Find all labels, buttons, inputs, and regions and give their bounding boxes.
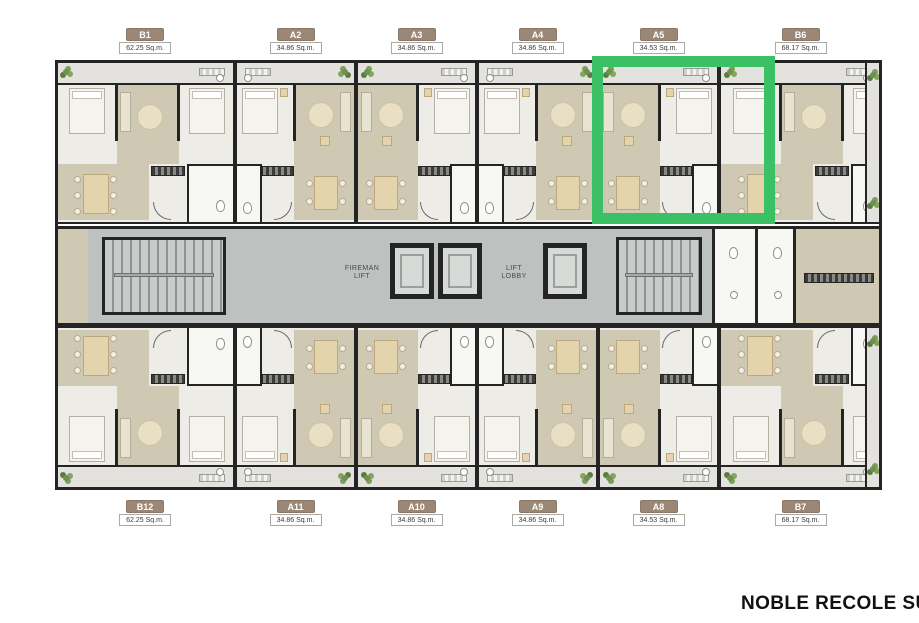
toilet-icon (243, 202, 252, 214)
unit-interior (479, 328, 596, 488)
unit-area-B7: 68.17 Sq.m. (775, 514, 827, 526)
interior-wall (115, 409, 118, 465)
bed (484, 416, 520, 462)
plant-icon (584, 69, 590, 75)
chair (110, 208, 117, 215)
entry-door-arc (420, 202, 438, 220)
plant-icon (63, 69, 69, 75)
unit-A4 (477, 60, 598, 224)
unit-area-A2: 34.86 Sq.m. (270, 42, 322, 54)
plant-icon (364, 475, 370, 481)
chair (738, 351, 745, 358)
nightstand (280, 88, 288, 97)
toilet-icon (243, 336, 252, 348)
chair (641, 345, 648, 352)
rug (550, 102, 576, 128)
bed (189, 88, 225, 134)
chair (581, 180, 588, 187)
fireman-lift-label: FIREMAN LIFT (336, 265, 388, 281)
unit-label-A3: A3 (398, 28, 436, 41)
core-west-strip (55, 226, 88, 326)
rug (801, 420, 827, 446)
unit-interior (479, 62, 596, 222)
unit-A2 (235, 60, 356, 224)
unit-label-B7: B7 (782, 500, 820, 513)
sink-icon (216, 74, 224, 82)
lift-shaft-fireman (390, 243, 434, 299)
unit-area-B12: 62.25 Sq.m. (119, 514, 171, 526)
dining-table (556, 340, 580, 374)
unit-interior (721, 328, 880, 488)
nightstand (666, 453, 674, 462)
kitchen-counter (660, 374, 692, 384)
chair (339, 345, 346, 352)
chair (366, 180, 373, 187)
chair (581, 363, 588, 370)
sofa (340, 92, 351, 132)
interior-wall (755, 229, 758, 323)
unit-B12 (55, 326, 235, 490)
chair (366, 345, 373, 352)
floor-plan-canvas: B162.25 Sq.m.A234.86 Sq.m.A334.86 Sq.m.A… (0, 0, 919, 623)
unit-label-A5: A5 (640, 28, 678, 41)
side-balcony (865, 328, 880, 488)
toilet-icon (460, 202, 469, 214)
pillow (437, 91, 467, 99)
rug (550, 422, 576, 448)
sofa (120, 418, 131, 458)
pillow (679, 451, 709, 459)
unit-label-B6: B6 (782, 28, 820, 41)
coffee-table (624, 404, 634, 414)
dining-table (616, 340, 640, 374)
coffee-table (382, 404, 392, 414)
chair (110, 335, 117, 342)
unit-A10 (356, 326, 477, 490)
lift-shaft-2 (543, 243, 587, 299)
rug (801, 104, 827, 130)
chair (548, 345, 555, 352)
chair (399, 180, 406, 187)
sink-icon (702, 468, 710, 476)
lift-car (395, 248, 429, 294)
bed (434, 416, 470, 462)
pillow (245, 451, 275, 459)
entry-door-arc (817, 202, 835, 220)
unit-A9 (477, 326, 598, 490)
plant-icon (342, 69, 348, 75)
entry-door-arc (516, 202, 534, 220)
pillow (72, 91, 102, 99)
nightstand (522, 88, 530, 97)
sofa (361, 92, 372, 132)
sofa (603, 418, 614, 458)
chair (399, 345, 406, 352)
pillow (245, 91, 275, 99)
entry-door-arc (817, 330, 835, 348)
chair (548, 180, 555, 187)
toilet-icon (485, 202, 494, 214)
bed (484, 88, 520, 134)
unit-interior (600, 328, 717, 488)
chair (608, 363, 615, 370)
unit-interior (358, 62, 475, 222)
chair (74, 192, 81, 199)
rug (308, 422, 334, 448)
stairwell-west (102, 237, 226, 315)
kitchen-counter (262, 166, 294, 176)
coffee-table (562, 136, 572, 146)
chair (581, 345, 588, 352)
unit-B7 (719, 326, 882, 490)
toilet-icon (773, 247, 782, 259)
lift-shaft-1 (438, 243, 482, 299)
lift-car (548, 248, 582, 294)
plant-icon (606, 475, 612, 481)
chair (74, 208, 81, 215)
chair (339, 363, 346, 370)
pillow (192, 451, 222, 459)
entry-door-arc (274, 202, 292, 220)
chair (641, 363, 648, 370)
pillow (487, 91, 517, 99)
dining-table (374, 340, 398, 374)
unit-A8 (598, 326, 719, 490)
kitchen-counter (504, 374, 536, 384)
plant-icon (870, 200, 876, 206)
interior-wall (177, 85, 180, 141)
unit-area-A8: 34.53 Sq.m. (633, 514, 685, 526)
chair (738, 335, 745, 342)
interior-wall (658, 409, 661, 465)
chair (366, 363, 373, 370)
unit-area-A11: 34.86 Sq.m. (270, 514, 322, 526)
bed (69, 416, 105, 462)
entry-door-arc (420, 330, 438, 348)
rug (620, 422, 646, 448)
sink-icon (216, 468, 224, 476)
chair (306, 363, 313, 370)
dining-table (314, 176, 338, 210)
green-highlight-box (592, 56, 775, 224)
unit-A3 (356, 60, 477, 224)
chair (608, 345, 615, 352)
chair (774, 192, 781, 199)
coffee-table (320, 404, 330, 414)
toilet-icon (216, 200, 225, 212)
chair (110, 176, 117, 183)
bed (189, 416, 225, 462)
entry-door-arc (274, 330, 292, 348)
entry-door-arc (516, 330, 534, 348)
lift-lobby-label: LIFT LOBBY (492, 265, 536, 281)
plant-icon (727, 475, 733, 481)
rug (378, 422, 404, 448)
chair (74, 351, 81, 358)
chair (774, 351, 781, 358)
plant-icon (584, 475, 590, 481)
dining-table (374, 176, 398, 210)
kitchen-counter (804, 273, 874, 283)
unit-label-A9: A9 (519, 500, 557, 513)
bed (242, 416, 278, 462)
sink-icon (730, 291, 738, 299)
dining-table (556, 176, 580, 210)
sink-icon (244, 74, 252, 82)
dining-table (83, 174, 109, 214)
chair (366, 198, 373, 205)
kitchen-counter (151, 374, 185, 384)
unit-interior (57, 62, 233, 222)
sink-icon (244, 468, 252, 476)
sofa (784, 418, 795, 458)
interior-wall (779, 409, 782, 465)
interior-wall (535, 85, 538, 141)
sofa (361, 418, 372, 458)
unit-label-A4: A4 (519, 28, 557, 41)
plant-icon (342, 475, 348, 481)
chair (738, 367, 745, 374)
chair (110, 351, 117, 358)
kitchen-counter (151, 166, 185, 176)
rug (308, 102, 334, 128)
interior-wall (416, 85, 419, 141)
plant-icon (870, 72, 876, 78)
chair (74, 176, 81, 183)
chair (110, 192, 117, 199)
unit-label-B12: B12 (126, 500, 164, 513)
stairwell-east (616, 237, 702, 315)
unit-interior (57, 328, 233, 488)
unit-area-A5: 34.53 Sq.m. (633, 42, 685, 54)
unit-label-A8: A8 (640, 500, 678, 513)
stair-handrail (114, 273, 213, 277)
chair (399, 198, 406, 205)
coffee-table (382, 136, 392, 146)
plant-icon (63, 475, 69, 481)
core-east-bathrooms (712, 226, 796, 326)
sofa (340, 418, 351, 458)
bed (676, 416, 712, 462)
side-balcony (865, 62, 880, 222)
unit-interior (237, 328, 354, 488)
toilet-icon (485, 336, 494, 348)
sink-icon (486, 468, 494, 476)
sofa (784, 92, 795, 132)
bed (733, 416, 769, 462)
dining-table (83, 336, 109, 376)
rug (137, 104, 163, 130)
plant-icon (870, 338, 876, 344)
unit-label-A2: A2 (277, 28, 315, 41)
sofa (582, 418, 593, 458)
chair (306, 345, 313, 352)
unit-label-A10: A10 (398, 500, 436, 513)
coffee-table (320, 136, 330, 146)
chair (339, 198, 346, 205)
pillow (437, 451, 467, 459)
sink-icon (460, 468, 468, 476)
interior-wall (293, 85, 296, 141)
bed (434, 88, 470, 134)
chair (774, 335, 781, 342)
kitchen-counter (418, 374, 450, 384)
interior-wall (293, 409, 296, 465)
unit-area-A10: 34.86 Sq.m. (391, 514, 443, 526)
bathroom-floor (187, 164, 233, 222)
chair (306, 180, 313, 187)
bed (69, 88, 105, 134)
interior-wall (535, 409, 538, 465)
chair (74, 335, 81, 342)
toilet-icon (216, 338, 225, 350)
unit-interior (237, 62, 354, 222)
chair (548, 198, 555, 205)
kitchen-counter (815, 166, 849, 176)
unit-label-B1: B1 (126, 28, 164, 41)
chair (110, 367, 117, 374)
interior-wall (779, 85, 782, 141)
unit-area-B1: 62.25 Sq.m. (119, 42, 171, 54)
plant-icon (364, 69, 370, 75)
unit-interior (358, 328, 475, 488)
pillow (487, 451, 517, 459)
core-east-strip (796, 226, 882, 326)
interior-wall (177, 409, 180, 465)
sofa (120, 92, 131, 132)
unit-B1 (55, 60, 235, 224)
chair (774, 208, 781, 215)
unit-A11 (235, 326, 356, 490)
plant-icon (870, 466, 876, 472)
bathroom-floor (187, 328, 233, 386)
chair (774, 367, 781, 374)
toilet-icon (729, 247, 738, 259)
chair (548, 363, 555, 370)
brand-text: NOBLE RECOLE SU (741, 593, 919, 615)
entry-door-arc (153, 202, 171, 220)
building-core: FIREMAN LIFT LIFT LOBBY (88, 226, 712, 326)
nightstand (522, 453, 530, 462)
unit-area-B6: 68.17 Sq.m. (775, 42, 827, 54)
rug (378, 102, 404, 128)
nightstand (280, 453, 288, 462)
dining-table (314, 340, 338, 374)
chair (399, 363, 406, 370)
rug (137, 420, 163, 446)
bed (242, 88, 278, 134)
sink-icon (486, 74, 494, 82)
chair (306, 198, 313, 205)
kitchen-counter (815, 374, 849, 384)
stair-handrail (625, 273, 692, 277)
pillow (192, 91, 222, 99)
sink-icon (774, 291, 782, 299)
interior-wall (841, 85, 844, 141)
dining-table (747, 336, 773, 376)
pillow (72, 451, 102, 459)
interior-wall (115, 85, 118, 141)
kitchen-counter (504, 166, 536, 176)
pillow (736, 451, 766, 459)
unit-label-A11: A11 (277, 500, 315, 513)
interior-wall (841, 409, 844, 465)
chair (74, 367, 81, 374)
interior-wall (416, 409, 419, 465)
coffee-table (562, 404, 572, 414)
lift-car (443, 248, 477, 294)
entry-door-arc (153, 330, 171, 348)
kitchen-counter (262, 374, 294, 384)
unit-area-A4: 34.86 Sq.m. (512, 42, 564, 54)
kitchen-counter (418, 166, 450, 176)
chair (339, 180, 346, 187)
entry-door-arc (662, 330, 680, 348)
toilet-icon (702, 336, 711, 348)
chair (774, 176, 781, 183)
unit-area-A9: 34.86 Sq.m. (512, 514, 564, 526)
toilet-icon (460, 336, 469, 348)
nightstand (424, 88, 432, 97)
unit-area-A3: 34.86 Sq.m. (391, 42, 443, 54)
nightstand (424, 453, 432, 462)
chair (581, 198, 588, 205)
sink-icon (460, 74, 468, 82)
